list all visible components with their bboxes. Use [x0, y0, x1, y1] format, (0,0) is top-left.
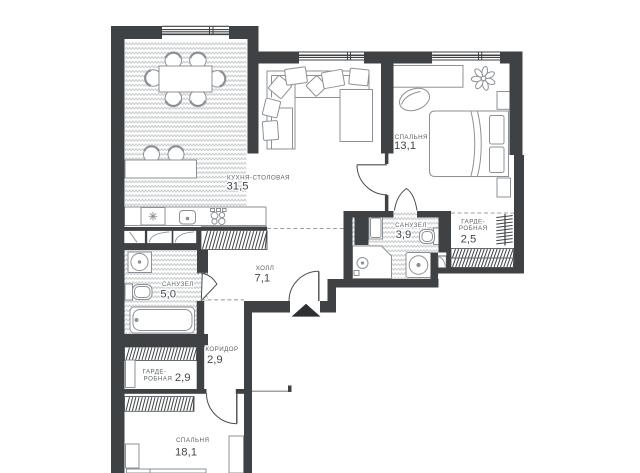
svg-text:3,9: 3,9 — [396, 229, 412, 241]
svg-text:5,0: 5,0 — [160, 289, 176, 301]
svg-text:7,1: 7,1 — [254, 273, 270, 285]
svg-text:САНУЗЕЛ: САНУЗЕЛ — [162, 281, 194, 288]
svg-text:РОБНАЯ: РОБНАЯ — [459, 225, 488, 232]
svg-text:ГАРДЕ-: ГАРДЕ- — [143, 368, 167, 375]
svg-text:2,5: 2,5 — [461, 234, 477, 246]
svg-text:РОБНАЯ: РОБНАЯ — [144, 376, 173, 383]
svg-text:ХОЛЛ: ХОЛЛ — [256, 265, 275, 272]
svg-text:САНУЗЕЛ: САНУЗЕЛ — [395, 222, 427, 229]
svg-text:18,1: 18,1 — [175, 446, 197, 458]
svg-text:КОРИДОР: КОРИДОР — [205, 346, 238, 353]
svg-text:31,5: 31,5 — [227, 181, 249, 193]
svg-text:СПАЛЬНЯ: СПАЛЬНЯ — [176, 437, 209, 444]
svg-text:2,9: 2,9 — [175, 372, 191, 384]
svg-text:2,9: 2,9 — [207, 354, 223, 366]
svg-text:13,1: 13,1 — [394, 140, 416, 152]
